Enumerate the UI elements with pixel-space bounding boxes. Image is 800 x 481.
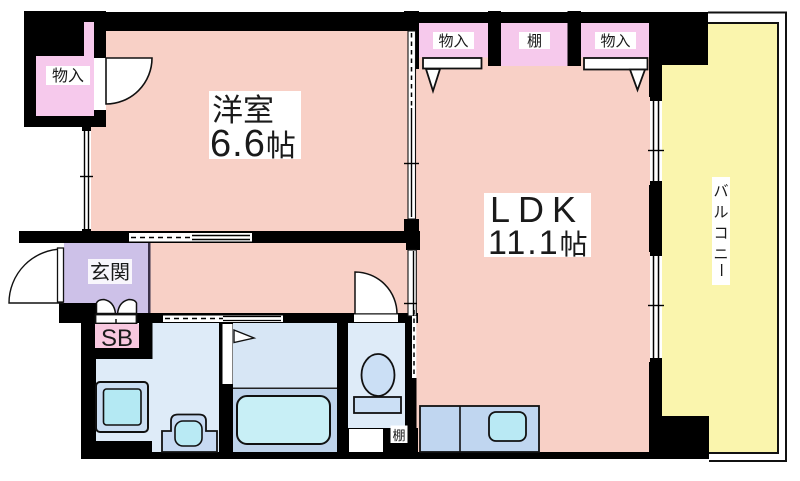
svg-text:ル: ル — [713, 204, 728, 221]
svg-text:SB: SB — [101, 325, 133, 352]
svg-text:6.6帖: 6.6帖 — [210, 123, 297, 165]
svg-text:ニ: ニ — [713, 246, 728, 263]
svg-text:バ: バ — [713, 183, 728, 200]
svg-text:コ: コ — [713, 225, 728, 242]
svg-text:ー: ー — [712, 262, 729, 277]
svg-text:玄関: 玄関 — [90, 261, 130, 284]
svg-text:物入: 物入 — [52, 67, 84, 85]
svg-text:棚: 棚 — [392, 428, 405, 443]
svg-text:物入: 物入 — [438, 33, 468, 50]
svg-text:11.1帖: 11.1帖 — [488, 224, 590, 262]
svg-text:棚: 棚 — [527, 33, 542, 50]
svg-text:物入: 物入 — [600, 33, 630, 50]
